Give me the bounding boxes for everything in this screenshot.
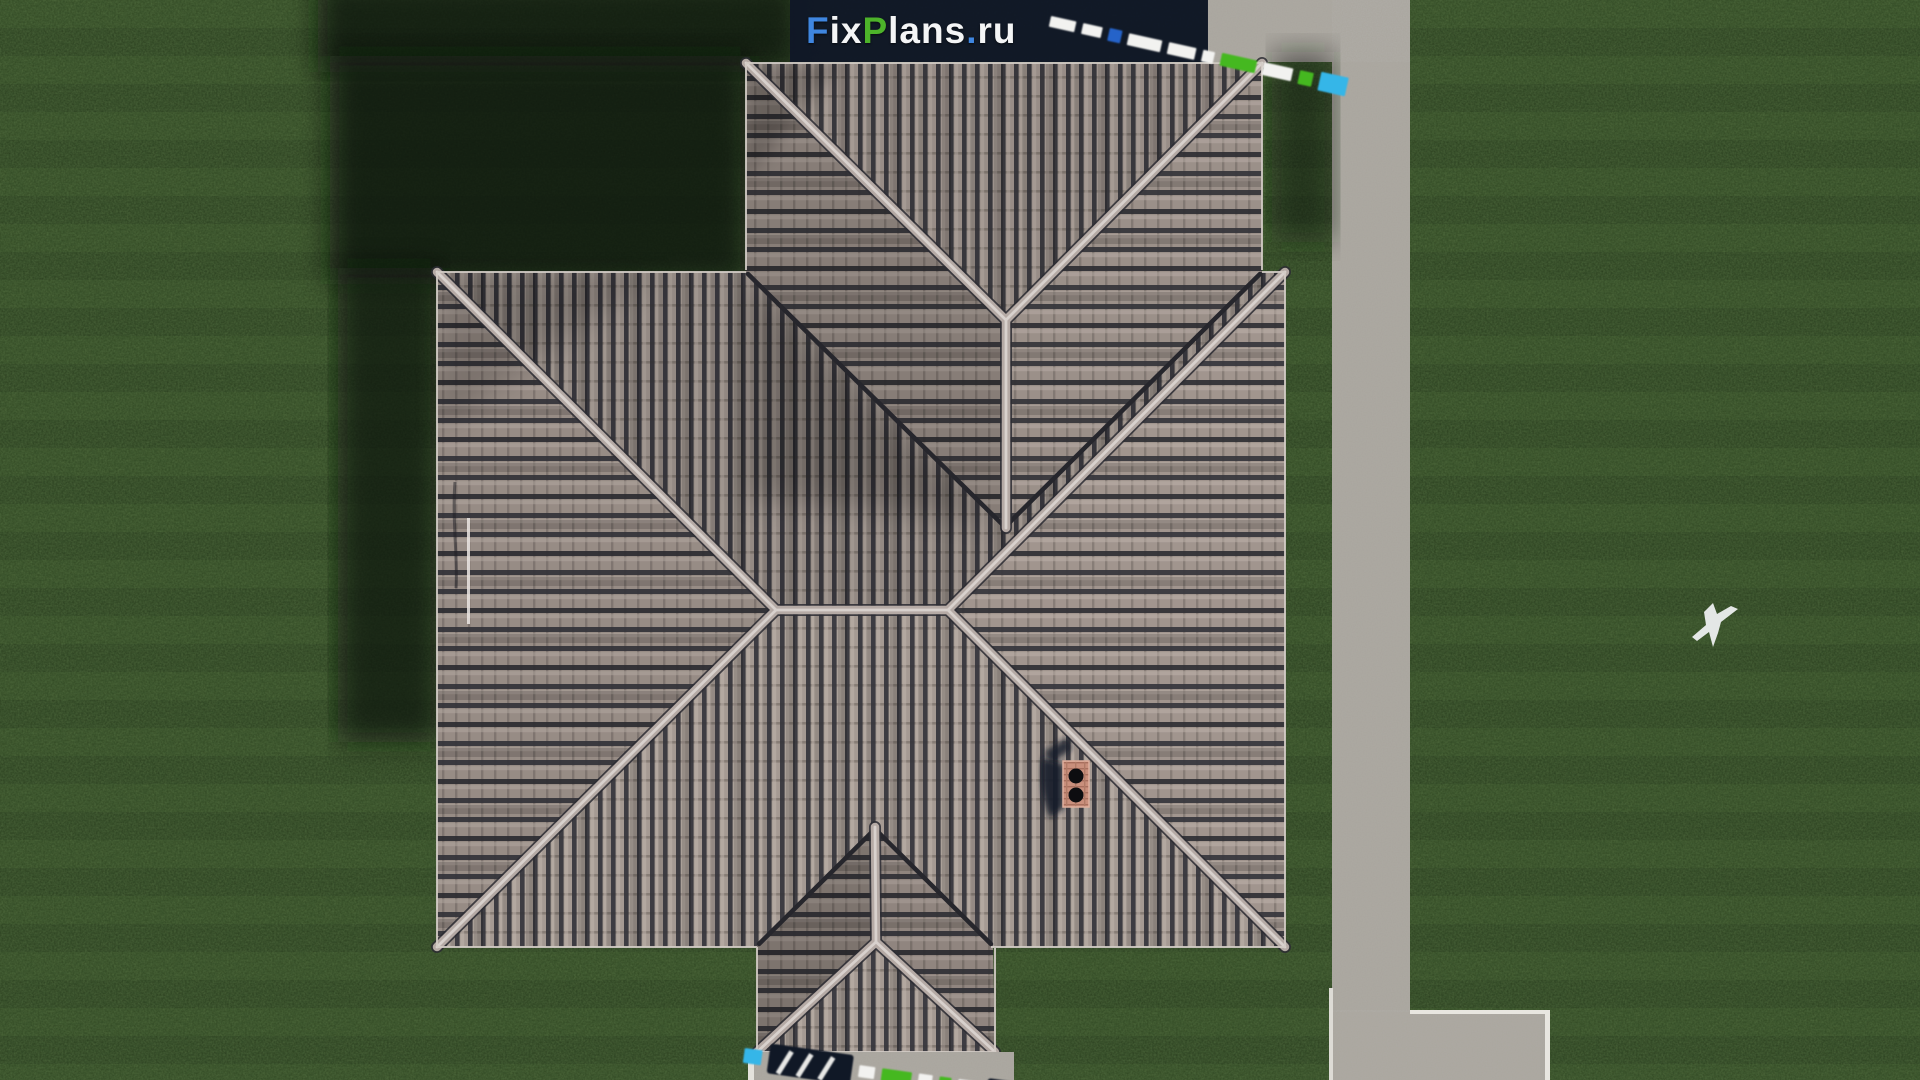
chimney-flue [1069,788,1084,803]
logo-letter: P [862,10,888,51]
logo-letter: ru [977,10,1016,51]
logo-letter: . [966,10,977,51]
aerial-house-render: FixPlans.ru [0,0,1920,1080]
logo-letter: ix [830,10,863,51]
patio-edge [1410,1010,1549,1014]
watermark-logo-bar: FixPlans.ru [790,0,1208,62]
chimney-flue [1069,769,1084,784]
logo-letter: F [806,10,830,51]
roof-rod-artifact [467,518,470,624]
site-logo: FixPlans.ru [790,10,1016,52]
scene-render [0,0,1920,1080]
logo-letter: lans [888,10,966,51]
